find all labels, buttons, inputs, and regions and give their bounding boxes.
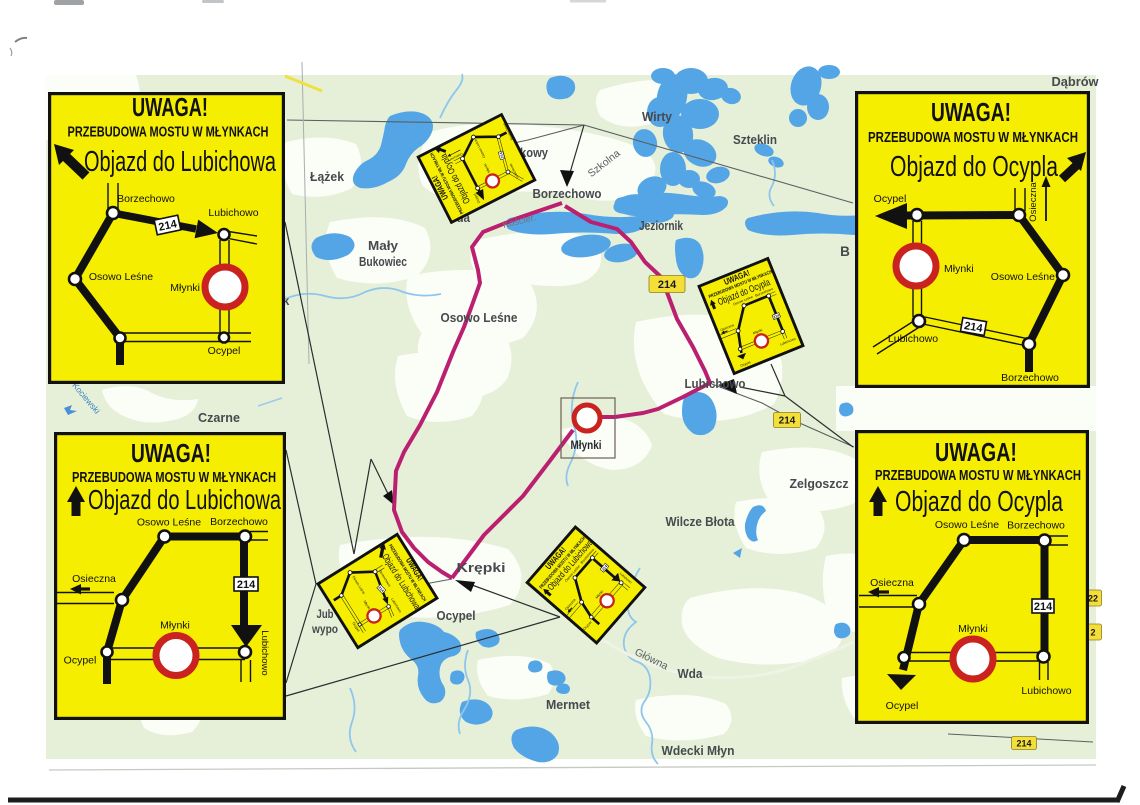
svg-text:Ocypel: Ocypel	[886, 700, 919, 712]
svg-text:Osowo Leśne: Osowo Leśne	[89, 271, 153, 283]
svg-text:Wda: Wda	[678, 666, 704, 681]
svg-text:UWAGA!: UWAGA!	[132, 94, 208, 122]
svg-text:UWAGA!: UWAGA!	[935, 437, 1017, 467]
svg-text:Mały: Mały	[368, 238, 399, 253]
svg-text:Młynki: Młynki	[958, 623, 988, 635]
svg-text:Lubichowo: Lubichowo	[888, 333, 938, 345]
svg-text:214: 214	[1034, 601, 1053, 613]
svg-text:Objazd do Lubichowa: Objazd do Lubichowa	[84, 146, 277, 178]
svg-text:Objazd do Ocypla: Objazd do Ocypla	[890, 151, 1059, 183]
svg-text:Ocypel: Ocypel	[64, 655, 97, 667]
svg-text:Borzechowo: Borzechowo	[210, 516, 268, 528]
svg-text:Borzechowo: Borzechowo	[117, 193, 175, 205]
svg-text:Wirty: Wirty	[642, 109, 673, 124]
svg-text:Młynki: Młynki	[170, 282, 200, 294]
svg-text:214: 214	[658, 279, 677, 291]
svg-text:Krępki: Krępki	[457, 560, 506, 575]
svg-text:Borzechowo: Borzechowo	[533, 186, 602, 201]
svg-text:Ocypel: Ocypel	[437, 609, 476, 623]
svg-text:Objazd do Lubichowa: Objazd do Lubichowa	[88, 484, 281, 515]
svg-text:Mermet: Mermet	[546, 697, 591, 712]
svg-text:wypo: wypo	[311, 624, 338, 636]
svg-text:Lubichowo: Lubichowo	[208, 207, 258, 219]
svg-text:Wilcze Błota: Wilcze Błota	[666, 514, 736, 529]
svg-text:Osieczna: Osieczna	[72, 573, 116, 585]
svg-text:Jeziornik: Jeziornik	[639, 218, 684, 233]
svg-text:Jub: Jub	[317, 609, 334, 621]
svg-text:Objazd do Ocypla: Objazd do Ocypla	[895, 486, 1064, 518]
svg-text:Osowo Leśne: Osowo Leśne	[137, 517, 201, 529]
svg-text:B: B	[840, 244, 850, 259]
svg-text:22: 22	[1088, 593, 1098, 603]
svg-text:Ocypel: Ocypel	[208, 345, 241, 357]
svg-text:Lubichowo: Lubichowo	[685, 376, 746, 391]
svg-text:Młynki: Młynki	[571, 438, 602, 452]
svg-text:UWAGA!: UWAGA!	[131, 438, 211, 468]
svg-text:UWAGA!: UWAGA!	[931, 97, 1011, 127]
svg-text:Osowo Leśne: Osowo Leśne	[441, 310, 518, 325]
svg-text:214: 214	[237, 579, 256, 591]
svg-text:Osieczna: Osieczna	[1028, 181, 1039, 221]
svg-text:Wdecki Młyn: Wdecki Młyn	[662, 743, 735, 758]
svg-text:Łążek: Łążek	[310, 169, 345, 184]
svg-text:214: 214	[779, 416, 796, 427]
svg-text:Osowo Leśne: Osowo Leśne	[991, 271, 1055, 283]
svg-text:Młynki: Młynki	[160, 620, 190, 632]
svg-text:Lubichowo: Lubichowo	[1021, 685, 1071, 697]
svg-text:Ocypel: Ocypel	[874, 193, 907, 205]
svg-text:Czarne: Czarne	[198, 411, 240, 425]
svg-text:Osowo Leśne: Osowo Leśne	[935, 519, 999, 531]
svg-text:2: 2	[1090, 627, 1095, 637]
svg-text:Borzechowo: Borzechowo	[1007, 520, 1065, 532]
svg-text:Zelgoszcz: Zelgoszcz	[790, 476, 849, 491]
svg-text:PRZEBUDOWA MOSTU W MŁYNKACH: PRZEBUDOWA MOSTU W MŁYNKACH	[875, 468, 1081, 484]
svg-text:Bukowiec: Bukowiec	[359, 254, 407, 269]
svg-text:Młynki: Młynki	[944, 263, 974, 275]
svg-text:Dąbrów: Dąbrów	[1052, 74, 1100, 89]
svg-text:Osieczna: Osieczna	[870, 577, 914, 589]
svg-text:Szteklin: Szteklin	[733, 132, 777, 147]
svg-text:214: 214	[1016, 738, 1031, 748]
svg-text:PRZEBUDOWA MOSTU W MŁYNKACH: PRZEBUDOWA MOSTU W MŁYNKACH	[868, 130, 1078, 146]
svg-text:Borzechowo: Borzechowo	[1001, 372, 1059, 384]
svg-text:PRZEBUDOWA MOSTU W MŁYNKACH: PRZEBUDOWA MOSTU W MŁYNKACH	[68, 125, 269, 141]
svg-text:Lubichowo: Lubichowo	[259, 630, 270, 675]
